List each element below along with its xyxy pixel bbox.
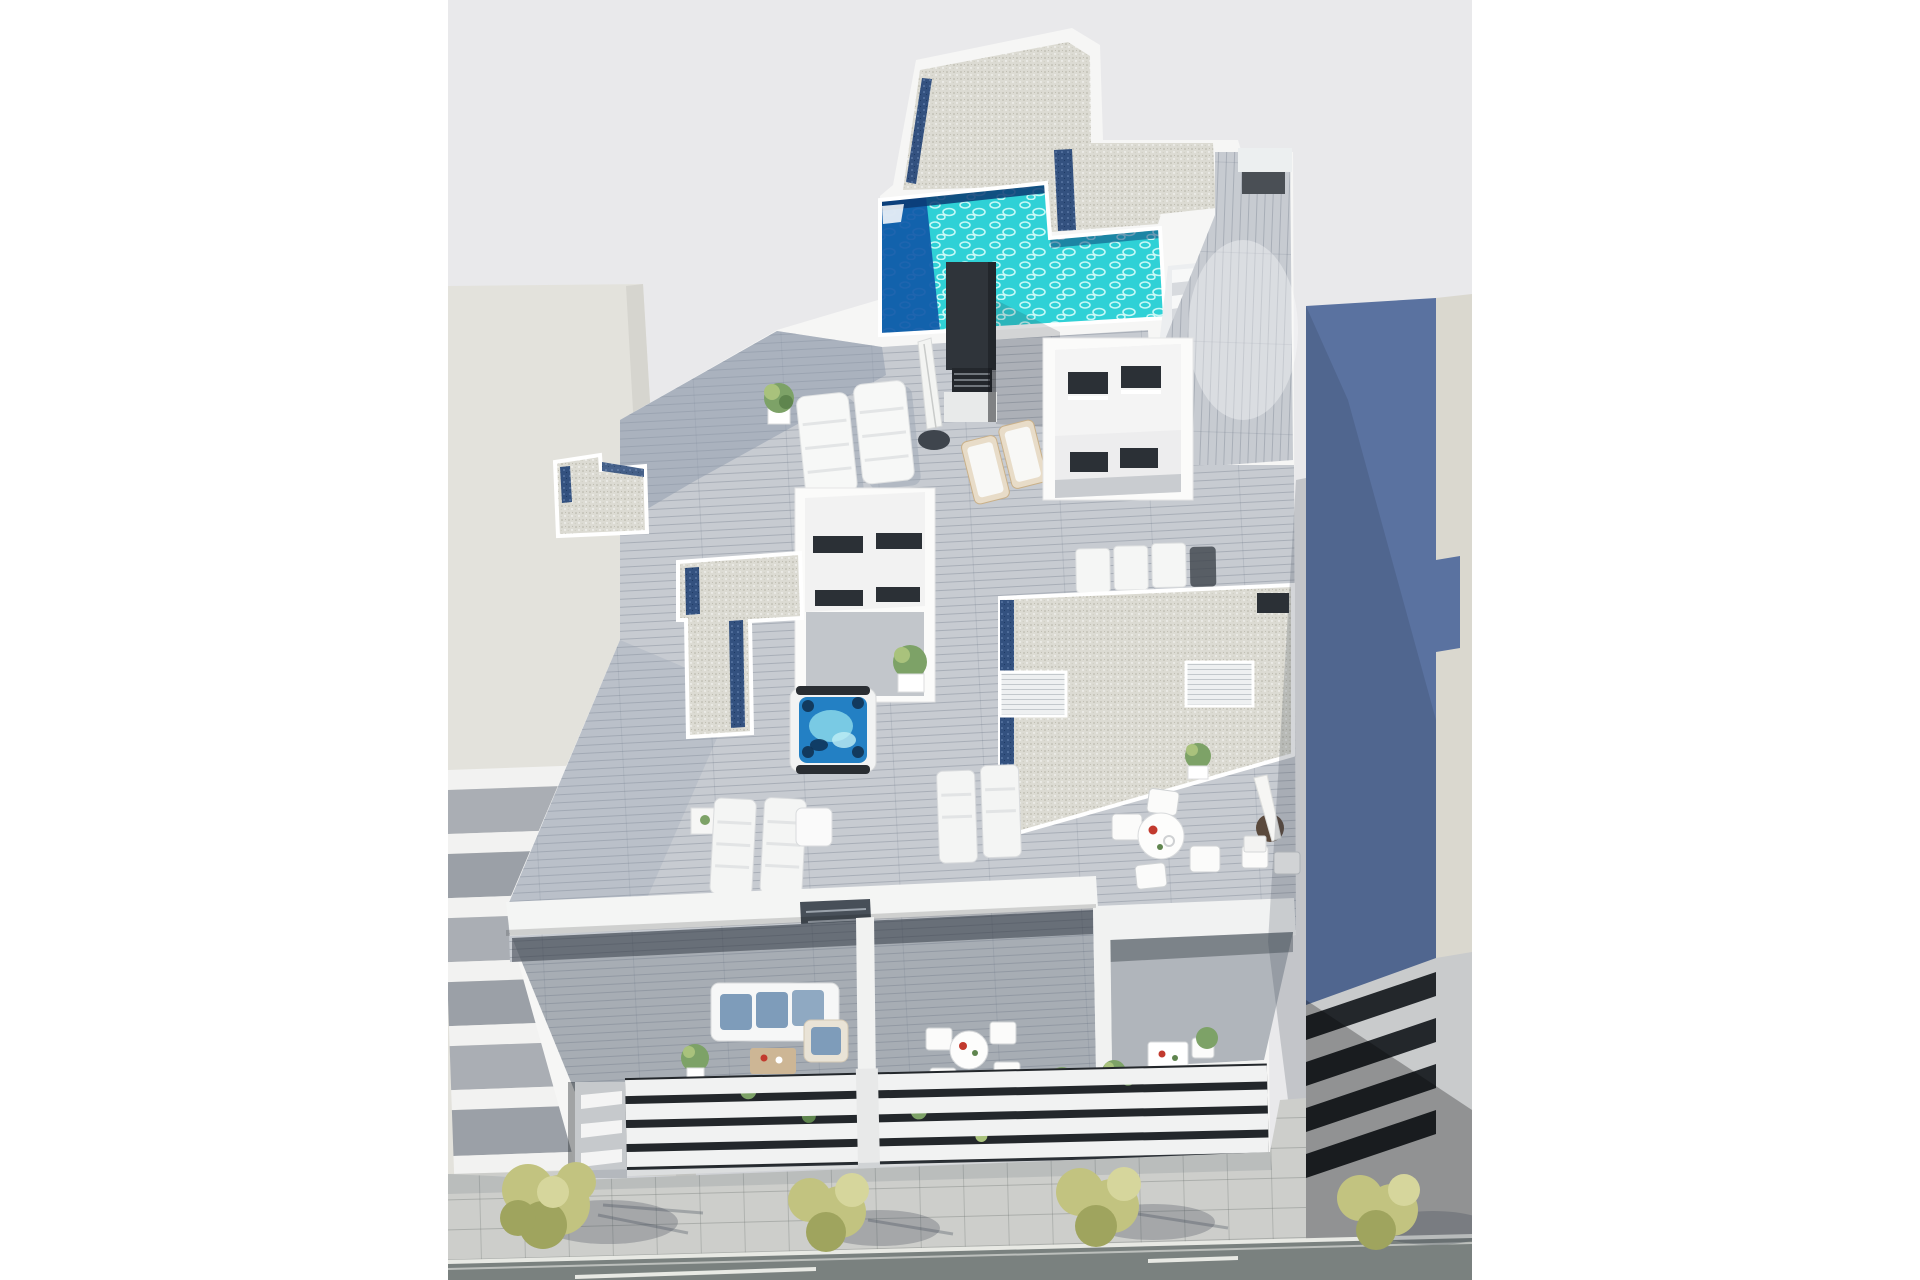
roof-gravel-left	[555, 455, 647, 536]
lightwell-b	[795, 488, 935, 702]
loungers-row	[1076, 542, 1217, 592]
privacy-divider	[856, 917, 876, 1085]
right-building	[1306, 294, 1472, 1242]
render-canvas	[448, 0, 1472, 1280]
jacuzzi	[790, 686, 876, 774]
planter-bush-top	[764, 383, 794, 424]
privacy-divider	[1093, 907, 1112, 1071]
corridor-door	[1242, 172, 1285, 194]
lightwell-a	[1043, 338, 1193, 500]
aerial-render	[448, 0, 1472, 1280]
pool-steps	[882, 204, 904, 224]
stair-head-box	[1238, 148, 1292, 172]
screenshot	[0, 0, 1920, 1280]
top-sun-loungers	[795, 379, 922, 503]
